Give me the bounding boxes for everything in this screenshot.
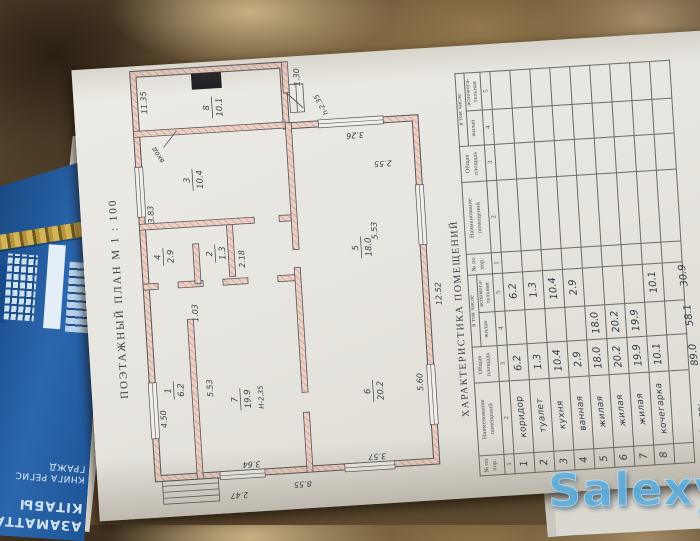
svg-text:20.2: 20.2 — [376, 381, 387, 401]
table-cell: 19.9 — [626, 336, 648, 373]
svg-text:11.35: 11.35 — [139, 91, 149, 114]
svg-text:2.18: 2.18 — [237, 250, 247, 268]
table-cell: 1.3 — [522, 270, 544, 309]
table-cell-empty — [614, 135, 636, 172]
table-cell-empty — [640, 243, 661, 264]
photo-of-floor-plan-document: { "watermark": "Salexy", "book": { "titl… — [0, 0, 700, 525]
svg-text:h-2.35: h-2.35 — [312, 92, 330, 116]
svg-text:4: 4 — [153, 254, 163, 260]
header-total-area: Общая площадь — [472, 346, 499, 384]
table-cell-empty — [549, 67, 571, 107]
table-cell: 20.2 — [606, 338, 628, 375]
entrance-porch — [162, 478, 219, 504]
svg-text:8.55: 8.55 — [294, 479, 312, 489]
annex-door-swing — [286, 92, 303, 109]
svg-text:7: 7 — [230, 396, 240, 403]
book-tower-illustration — [43, 244, 66, 329]
floor-plan-sheet: ПОЭТАЖНЫЙ ПЛАН М 1 : 100 — [71, 31, 700, 522]
svg-text:3.64: 3.64 — [242, 459, 260, 469]
table-cell: 10.1 — [646, 335, 668, 372]
outer-walls — [130, 54, 440, 482]
table-cell-empty — [666, 334, 688, 371]
table-cell — [622, 264, 644, 303]
svg-text:18.0: 18.0 — [364, 237, 375, 257]
table-cell-empty — [532, 106, 554, 141]
table-cell-empty — [489, 70, 511, 110]
room-label-7: 719.9 — [230, 388, 254, 411]
table-cell-empty — [569, 65, 591, 105]
svg-text:2.55: 2.55 — [374, 158, 392, 168]
svg-text:6.2: 6.2 — [176, 383, 187, 397]
table-cell: 1 — [513, 452, 534, 473]
table-cell: 18.0 — [586, 339, 608, 376]
svg-text:2.47: 2.47 — [229, 490, 248, 500]
table-cell-empty — [654, 133, 676, 170]
svg-text:4.50: 4.50 — [159, 410, 169, 428]
svg-text:5.53: 5.53 — [370, 221, 380, 239]
room-label-6: 620.2 — [362, 379, 386, 402]
svg-text:5.60: 5.60 — [415, 373, 425, 391]
room-label-3: 310.4 — [182, 168, 206, 191]
table-cell-empty — [572, 104, 594, 139]
table-cell-empty — [521, 250, 542, 271]
table-cell-empty — [629, 62, 651, 102]
table-cell: 10.4 — [546, 341, 568, 378]
svg-text:2.9: 2.9 — [166, 249, 177, 263]
table-cell-empty — [581, 246, 602, 267]
svg-text:1.3: 1.3 — [218, 246, 229, 260]
table-cell: 2.9 — [566, 340, 588, 377]
svg-text:8: 8 — [202, 104, 212, 111]
table-cell — [564, 306, 586, 341]
svg-text:5.53: 5.53 — [205, 379, 215, 397]
table-cell-empty — [534, 140, 556, 177]
document-content: ПОЭТАЖНЫЙ ПЛАН М 1 : 100 — [72, 32, 700, 521]
table-cell-empty — [651, 99, 673, 134]
table-cell: 2.9 — [562, 268, 584, 307]
table-cell-empty — [609, 63, 631, 103]
svg-text:3.57: 3.57 — [367, 451, 386, 461]
header-total-area-2: Общая площадь — [459, 145, 486, 183]
table-cell-empty — [669, 370, 694, 444]
plan-notes: Н-2.35 h-2.35 вход — [147, 92, 348, 415]
table-cell-empty — [574, 138, 596, 175]
table-cell: 20.2 — [604, 303, 626, 338]
svg-text:1.03: 1.03 — [190, 304, 200, 322]
annex-steps — [289, 84, 305, 113]
table-cell-empty — [554, 139, 576, 176]
windows — [132, 114, 441, 484]
table-cell — [582, 266, 604, 305]
svg-text:2: 2 — [205, 251, 215, 257]
room-label-8: 810.1 — [201, 96, 225, 119]
table-cell: 10.1 — [642, 263, 664, 302]
table-cell-empty — [509, 69, 531, 109]
table-cell-empty — [561, 248, 582, 269]
svg-text:6: 6 — [363, 388, 373, 395]
svg-text:10.4: 10.4 — [195, 170, 206, 190]
table-cell: 1.3 — [527, 343, 549, 380]
table-cell-empty — [601, 245, 622, 266]
header-number-2: № по пор. — [466, 253, 492, 275]
table-cell: 6.2 — [507, 344, 529, 381]
table-cell-empty — [594, 136, 616, 173]
room-label-2: 21.3 — [205, 244, 229, 263]
table-cell — [544, 307, 566, 342]
table-cell: 6.2 — [502, 271, 524, 310]
totals-label: Итого: — [695, 402, 700, 437]
table-cell — [602, 265, 624, 304]
table-cell: 18.0 — [584, 305, 606, 340]
totals-living-area: 58.1 — [682, 303, 696, 327]
svg-text:10.1: 10.1 — [214, 97, 225, 117]
table-cell — [644, 301, 666, 336]
table-cell-empty — [541, 249, 562, 270]
table-cell: 10.4 — [542, 269, 564, 308]
table-cell-empty — [649, 60, 671, 100]
table-cell-empty — [494, 143, 516, 180]
table-cell-empty — [620, 244, 641, 265]
table-cell-empty — [592, 102, 614, 137]
table-cell-empty — [589, 64, 611, 104]
svg-text:5: 5 — [351, 245, 361, 251]
salexy-watermark: Salexy — [548, 460, 700, 517]
room-label-1: 16.2 — [163, 381, 187, 400]
table-cell-empty — [631, 100, 653, 135]
window-midlines — [137, 118, 437, 480]
svg-text:Н-2.35: Н-2.35 — [257, 385, 266, 409]
table-cell-empty — [612, 101, 634, 136]
premises-table: № по пор. Наименование помещений Общая п… — [454, 60, 694, 477]
premises-table-section: ХАРАКТЕРИСТИКА ПОМЕЩЕНИЙ № по пор. Наиме… — [438, 44, 694, 478]
totals-total-area: 89.0 — [687, 343, 700, 367]
table-cell: 19.9 — [624, 302, 646, 337]
svg-text:3.83: 3.83 — [146, 205, 156, 223]
svg-text:1: 1 — [164, 388, 174, 394]
svg-text:12.52: 12.52 — [433, 282, 443, 305]
svg-text:19.9: 19.9 — [243, 389, 254, 409]
svg-text:3.26: 3.26 — [346, 130, 364, 140]
book-building-illustration — [4, 253, 39, 321]
table-cell — [504, 310, 526, 345]
svg-text:1.30: 1.30 — [292, 68, 302, 86]
table-cell-empty — [514, 141, 536, 178]
stove-mark — [191, 72, 222, 90]
table-cell-empty — [512, 107, 534, 142]
table-cell-empty — [552, 105, 574, 140]
room-label-4: 42.9 — [153, 247, 177, 266]
book-cover-titles: АЗАМАТТАРДЫ КІТАБЫ КНИГА РЕГИС ГРАЖД — [0, 378, 91, 535]
table-cell-empty — [634, 134, 656, 171]
svg-text:3: 3 — [182, 177, 192, 183]
table-cell-empty — [501, 251, 522, 272]
table-cell-empty — [529, 68, 551, 108]
svg-text:вход: вход — [150, 145, 166, 164]
table-cell-empty — [492, 109, 514, 144]
totals-aux-area: 30.9 — [677, 264, 691, 288]
table-cell — [524, 308, 546, 343]
floor-plan-title: ПОЭТАЖНЫЙ ПЛАН М 1 : 100 — [105, 169, 133, 429]
header-number: № по пор. — [479, 454, 505, 476]
floor-plan-drawing: 16.2 21.3 310.4 42.9 518.0 620.2 719.9 8… — [124, 49, 460, 517]
